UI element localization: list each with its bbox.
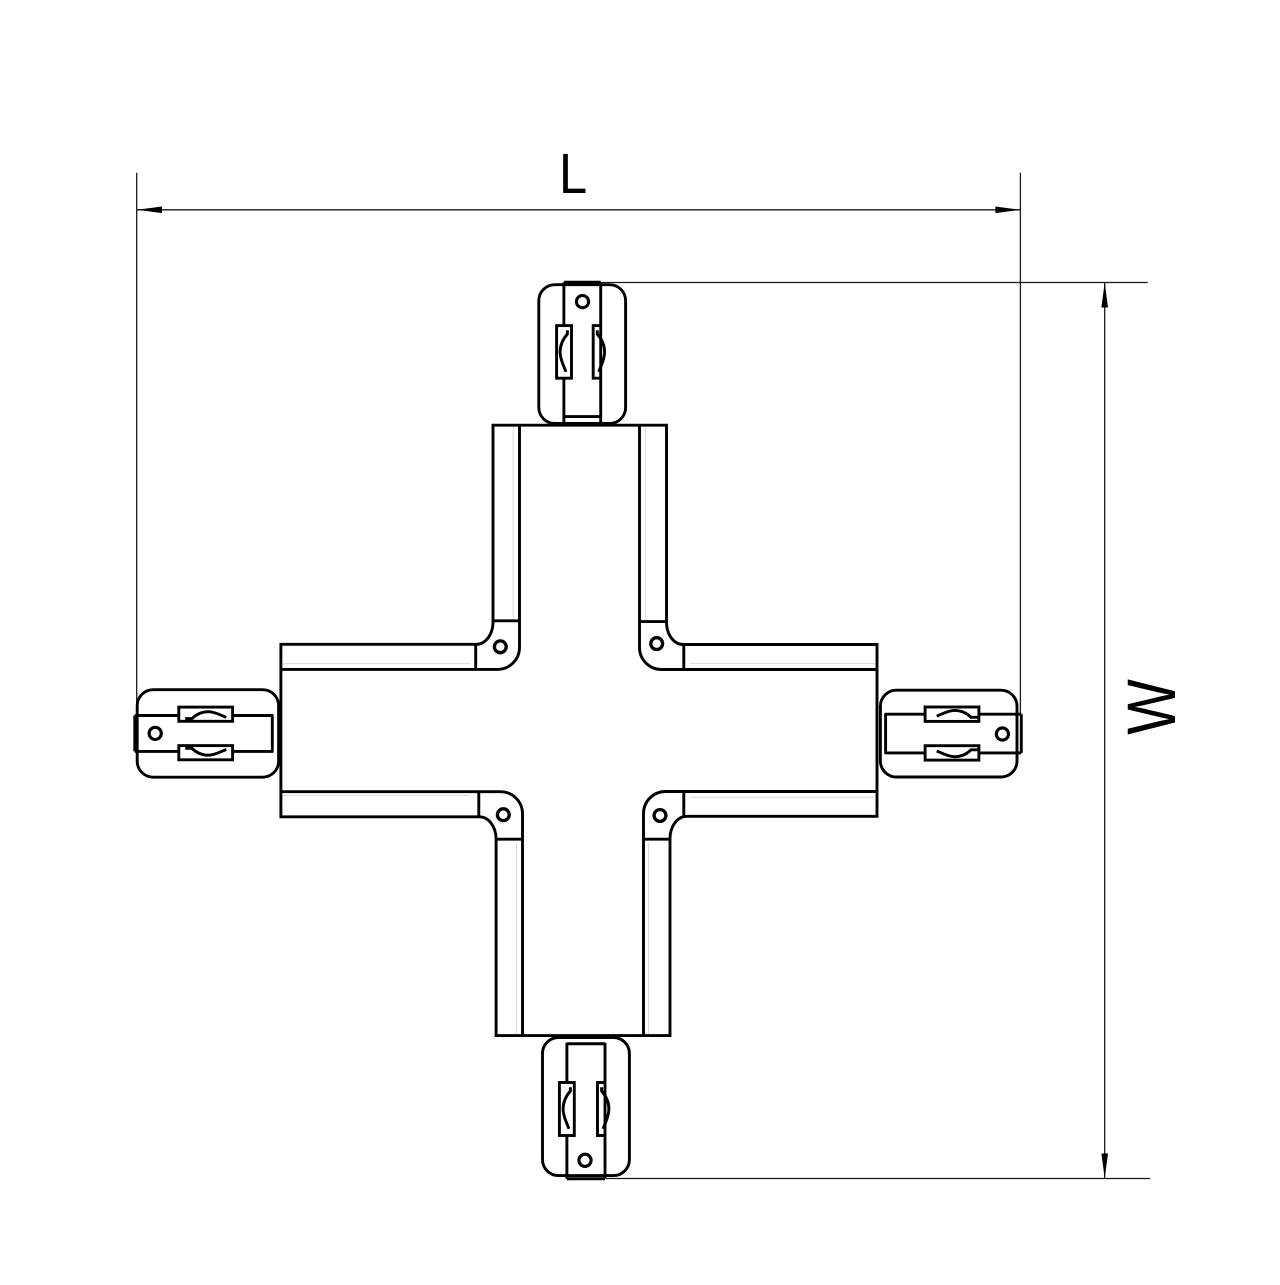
svg-text:W: W bbox=[1113, 679, 1190, 735]
svg-text:L: L bbox=[559, 142, 587, 205]
